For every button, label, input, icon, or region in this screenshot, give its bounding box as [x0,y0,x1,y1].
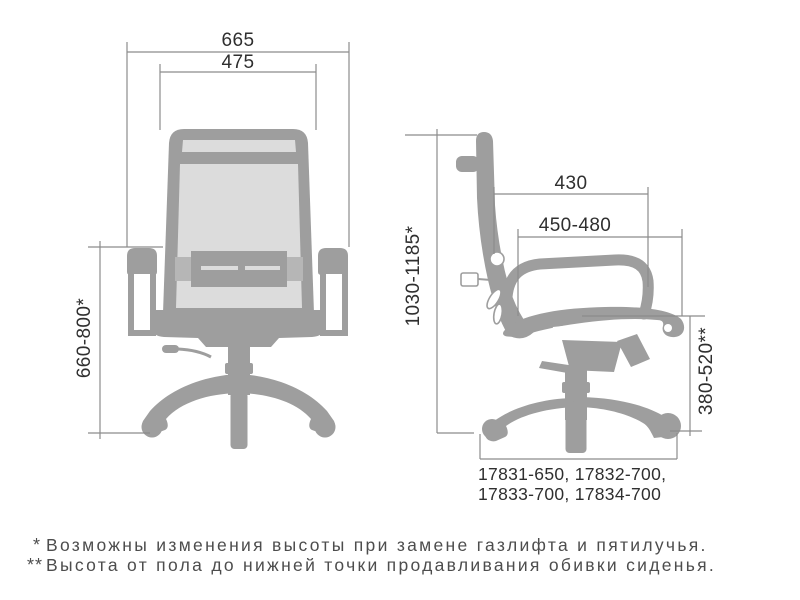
dim-overall-width-label: 665 [222,30,255,52]
seat-front [152,310,324,347]
base-leg-front [231,392,248,449]
seat-side-profile [503,307,684,337]
chair-drawing-canvas [0,0,800,600]
gas-lift-collar [225,363,253,374]
base-leg-center-side [566,415,587,453]
armrest-left-body [131,271,153,333]
dim-backrest-depth-label: 430 [555,173,588,195]
base-models-line1: 17831-650, 17832-700, [478,464,666,485]
dim-height-range-label: 660-800* [74,298,96,378]
lumbar-slot-right [245,266,280,270]
base-models-line2: 17833-700, 17834-700 [478,484,661,505]
caster-left [142,417,163,438]
footnote-1-text: Возможны изменения высоты при замене газ… [46,535,708,556]
tilt-lever-handle [162,345,179,353]
caster-right [315,417,336,438]
lumbar-slot-left [201,266,238,270]
backrest-top-slot [182,140,296,152]
footnote-2-marker: ** [27,555,43,576]
armrest-side-loop [507,260,648,314]
armrest-right-body [323,271,345,333]
dim-seat-depth-label: 450-480 [539,215,612,237]
backrest-hook-tab [456,156,479,172]
seat-front-notch [664,324,672,332]
footnote-1-marker: * [33,535,41,556]
dim-backrest-width-label: 475 [222,52,255,74]
caster-back [482,419,502,439]
backrest-side-profile [476,132,534,338]
dimension-diagram: 665 475 660-800* 1030-1185* 430 450-480 … [0,0,800,600]
footnote-2-text: Высота от пола до нижней точки продавлив… [46,555,716,576]
tilt-lever-cable [178,349,211,357]
gas-lift-column-side [565,368,587,420]
front-view-chair [127,129,348,449]
gas-lift-collar-side [562,382,590,393]
mechanism-lever [617,334,650,367]
dim-seat-height-label: 380-520** [696,327,718,415]
dim-overall-height-label: 1030-1185* [403,226,425,327]
